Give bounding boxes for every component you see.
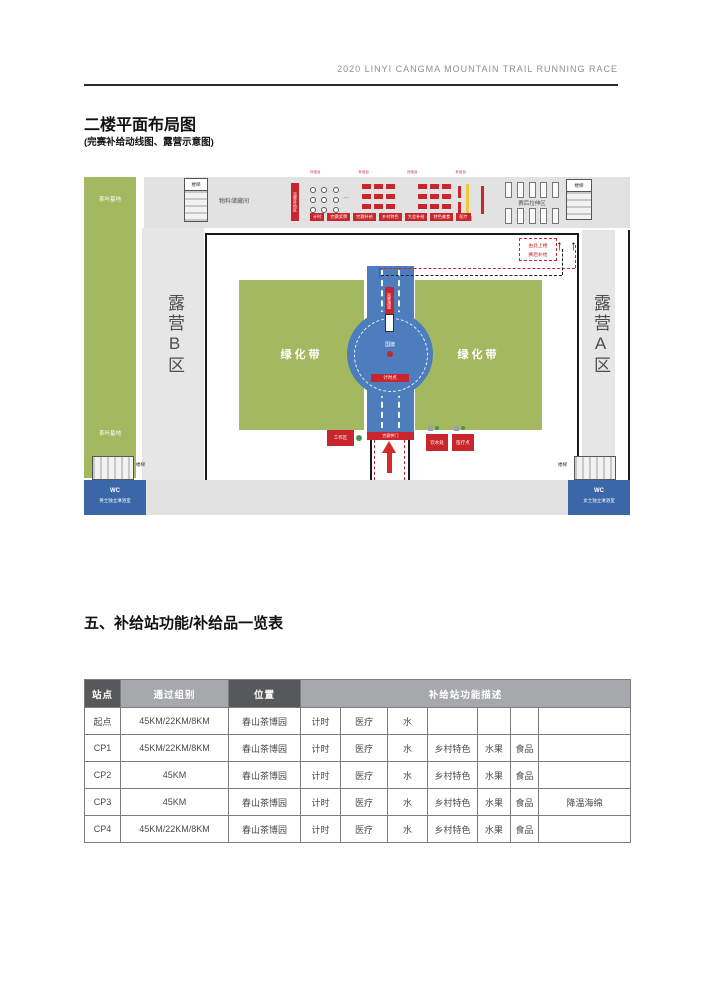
cell-groups: 45KM/22KM/8KM bbox=[121, 735, 229, 762]
flag-label: 国旗 bbox=[370, 341, 410, 348]
chair-icon bbox=[333, 187, 339, 193]
stretch-mat-row bbox=[505, 208, 559, 224]
supply-chip: 大会补给 bbox=[405, 213, 428, 221]
cell-function: 医疗 bbox=[341, 762, 388, 789]
supply-table-icon bbox=[430, 184, 439, 189]
stairs-icon bbox=[574, 456, 616, 480]
plan-subtitle: (完赛补给动线图、露营示意图) bbox=[84, 134, 214, 148]
supply-table: 站点 通过组别 位置 补给站功能描述 起点 45KM/22KM/8KM 春山茶博… bbox=[84, 679, 631, 843]
chair-icon bbox=[310, 197, 316, 203]
cell-station: CP2 bbox=[85, 762, 121, 789]
bottom-corridor bbox=[84, 480, 630, 515]
col-groups: 通过组别 bbox=[121, 680, 229, 708]
supply-chip: 医疗 bbox=[456, 213, 470, 221]
header-divider bbox=[84, 84, 618, 86]
medical-station-box: 医疗点 bbox=[452, 434, 474, 451]
chairs-cluster bbox=[310, 187, 340, 213]
mat-icon bbox=[517, 208, 524, 224]
table-row: CP2 45KM 春山茶博园 计时 医疗 水 乡村特色 水果 食品 bbox=[85, 762, 631, 789]
supply-table-icon bbox=[386, 204, 395, 209]
supply-table-icon bbox=[362, 204, 371, 209]
lane-dash-red bbox=[404, 440, 405, 480]
cell-groups: 45KM/22KM/8KM bbox=[121, 708, 229, 735]
dispenser-icon bbox=[428, 426, 433, 431]
col-station: 站点 bbox=[85, 680, 121, 708]
cell-groups: 45KM bbox=[121, 762, 229, 789]
dispenser-icon bbox=[435, 426, 439, 430]
stairs-label: 楼梯 bbox=[558, 462, 567, 468]
cell-function: 水果 bbox=[478, 735, 511, 762]
right-wall bbox=[628, 230, 631, 480]
tea-base-label: 茶叶基地 bbox=[84, 195, 136, 203]
supply-table-icon bbox=[362, 184, 371, 189]
chair-icon bbox=[321, 187, 327, 193]
cell-function: 水 bbox=[388, 735, 428, 762]
supply-table-icon bbox=[386, 184, 395, 189]
camp-zone-b: 露营B区 bbox=[142, 228, 204, 480]
cell-function: 计时 bbox=[301, 816, 341, 843]
wc-label: WC bbox=[568, 488, 630, 494]
supply-table-icon bbox=[374, 184, 383, 189]
cell-groups: 45KM bbox=[121, 789, 229, 816]
table-row: CP3 45KM 春山茶博园 计时 医疗 水 乡村特色 水果 食品 降温海绵 bbox=[85, 789, 631, 816]
cell-function: 水 bbox=[388, 708, 428, 735]
supply-chip: 特色美食 bbox=[430, 213, 453, 221]
wc-women: WC 女士独立淋浴室 bbox=[568, 480, 630, 515]
camp-a-label: 露营A区 bbox=[588, 294, 613, 376]
cell-station: CP4 bbox=[85, 816, 121, 843]
page: 2020 LINYI CANGMA MOUNTAIN TRAIL RUNNING… bbox=[0, 0, 702, 993]
courtyard: 绿化带 绿化带 国旗 计时点 完赛通道 由此上楼 赛后补给 bbox=[205, 233, 579, 482]
fixture-red-bar bbox=[481, 186, 484, 214]
mat-icon bbox=[540, 208, 547, 224]
upstairs-note-line1: 由此上楼 bbox=[520, 242, 556, 249]
timing-point-chip: 计时点 bbox=[371, 374, 409, 382]
supply-table-icon bbox=[374, 194, 383, 199]
cell-function: 乡村特色 bbox=[428, 762, 478, 789]
lane-dash-red bbox=[374, 440, 375, 480]
supply-table-icon bbox=[418, 204, 427, 209]
supply-table-icon bbox=[418, 194, 427, 199]
cell-station: CP1 bbox=[85, 735, 121, 762]
supply-chip: 完赛补给 bbox=[353, 213, 376, 221]
cell-function bbox=[428, 708, 478, 735]
cell-location: 春山茶博园 bbox=[229, 735, 301, 762]
cell-function: 计时 bbox=[301, 762, 341, 789]
mat-icon bbox=[505, 208, 512, 224]
cell-function bbox=[539, 735, 631, 762]
tea-base-label: 茶叶基地 bbox=[84, 429, 136, 437]
cell-location: 春山茶博园 bbox=[229, 762, 301, 789]
supply-chip: 乡村特色 bbox=[379, 213, 402, 221]
storage-room-label: 物料储藏间 bbox=[208, 196, 260, 205]
stairs-icon bbox=[184, 190, 208, 222]
finish-direction-arrow-stem bbox=[387, 453, 392, 473]
mat-icon bbox=[529, 182, 536, 198]
cell-station: CP3 bbox=[85, 789, 121, 816]
green-belt-label: 绿化带 bbox=[415, 346, 542, 362]
chair-icon bbox=[321, 197, 327, 203]
supply-top-marks: 补给台 补给台 补给台 补给台 bbox=[310, 170, 500, 175]
cell-function: 水果 bbox=[478, 762, 511, 789]
cell-groups: 45KM/22KM/8KM bbox=[121, 816, 229, 843]
wc-women-label: 女士独立淋浴室 bbox=[568, 498, 630, 504]
stairs-label: 楼梯 bbox=[136, 462, 145, 468]
cell-function: 乡村特色 bbox=[428, 735, 478, 762]
route-dash-red bbox=[379, 268, 380, 278]
finish-arch: 完赛拱门 bbox=[367, 432, 414, 440]
work-area-box: 工作区 bbox=[327, 430, 354, 446]
camp-zone-a: 露营A区 bbox=[582, 230, 615, 480]
flag-icon bbox=[387, 351, 393, 357]
table-row: CP4 45KM/22KM/8KM 春山茶博园 计时 医疗 水 乡村特色 水果 … bbox=[85, 816, 631, 843]
wc-men: WC 男士独立淋浴室 bbox=[84, 480, 146, 515]
floor-plan: 茶叶基地 茶叶基地 补给台 补给台 补给台 补给台 楼梯 物料储藏间 完赛补给区… bbox=[84, 170, 630, 515]
supply-chip: 完赛奖牌 bbox=[327, 213, 350, 221]
cell-function: 计时 bbox=[301, 735, 341, 762]
plan-title: 二楼平面布局图 bbox=[84, 111, 196, 135]
dispenser-icon bbox=[454, 426, 459, 431]
stairs-icon bbox=[92, 456, 134, 480]
cell-function bbox=[478, 708, 511, 735]
mat-icon bbox=[552, 208, 559, 224]
cell-function: 食品 bbox=[511, 789, 539, 816]
upstairs-note-line2: 赛后补给 bbox=[520, 251, 556, 258]
finish-supply-banner: 完赛补给区 bbox=[291, 183, 299, 221]
cell-function: 水果 bbox=[478, 816, 511, 843]
cell-function: 食品 bbox=[511, 816, 539, 843]
finish-direction-arrow-head bbox=[382, 441, 396, 453]
cell-function: 乡村特色 bbox=[428, 816, 478, 843]
cell-function: 食品 bbox=[511, 762, 539, 789]
stretch-mat-row bbox=[505, 182, 559, 198]
cell-function bbox=[511, 708, 539, 735]
supply-tables-grid bbox=[362, 184, 395, 209]
cell-location: 春山茶博园 bbox=[229, 789, 301, 816]
supply-top-mark: 补给台 bbox=[359, 170, 370, 175]
water-station-box: 饮水处 bbox=[426, 434, 448, 451]
green-belt-left: 绿化带 bbox=[239, 280, 364, 430]
chair-icon bbox=[310, 187, 316, 193]
supply-table-icon bbox=[374, 204, 383, 209]
route-dash-black bbox=[381, 275, 562, 276]
cell-function: 乡村特色 bbox=[428, 789, 478, 816]
mat-icon bbox=[517, 182, 524, 198]
cell-function: 医疗 bbox=[341, 735, 388, 762]
table-row: CP1 45KM/22KM/8KM 春山茶博园 计时 医疗 水 乡村特色 水果 … bbox=[85, 735, 631, 762]
cell-function: 降温海绵 bbox=[539, 789, 631, 816]
camp-b-label: 露营B区 bbox=[162, 294, 187, 376]
lane-wall bbox=[408, 440, 410, 480]
supply-station-table: 站点 通过组别 位置 补给站功能描述 起点 45KM/22KM/8KM 春山茶博… bbox=[84, 679, 631, 843]
supply-table-icon bbox=[418, 184, 427, 189]
mat-icon bbox=[540, 182, 547, 198]
cell-function bbox=[539, 816, 631, 843]
cell-function: 水 bbox=[388, 789, 428, 816]
green-belt-right: 绿化带 bbox=[415, 280, 542, 430]
supply-table-icon bbox=[442, 194, 451, 199]
road-banner-post bbox=[385, 314, 394, 332]
cell-function: 计时 bbox=[301, 789, 341, 816]
up-arrow-icon: ↑ bbox=[570, 237, 577, 253]
col-functions: 补给站功能描述 bbox=[301, 680, 631, 708]
supply-table-icon bbox=[362, 194, 371, 199]
cell-function: 医疗 bbox=[341, 816, 388, 843]
stairs-icon bbox=[566, 191, 592, 220]
supply-top-mark: 补给台 bbox=[456, 170, 467, 175]
cell-location: 春山茶博园 bbox=[229, 816, 301, 843]
lane-wall bbox=[370, 440, 372, 480]
supply-table-icon bbox=[430, 204, 439, 209]
supply-top-mark: 补给台 bbox=[310, 170, 321, 175]
wc-men-label: 男士独立淋浴室 bbox=[84, 498, 146, 504]
supply-table-icon bbox=[386, 194, 395, 199]
cell-function: 医疗 bbox=[341, 789, 388, 816]
mat-icon bbox=[505, 182, 512, 198]
col-location: 位置 bbox=[229, 680, 301, 708]
up-arrow-icon: ↑ bbox=[556, 237, 563, 253]
upstairs-note: 由此上楼 赛后补给 bbox=[519, 238, 557, 261]
supply-section-title: 五、补给站功能/补给品一览表 bbox=[84, 612, 283, 633]
chair-icon bbox=[333, 197, 339, 203]
cell-function: 水 bbox=[388, 762, 428, 789]
race-title: 2020 LINYI CANGMA MOUNTAIN TRAIL RUNNING… bbox=[337, 64, 618, 74]
cell-location: 春山茶博园 bbox=[229, 708, 301, 735]
supply-tables-grid bbox=[418, 184, 451, 209]
cell-function: 水果 bbox=[478, 789, 511, 816]
dispenser-icon bbox=[461, 426, 465, 430]
road-banner: 完赛通道 bbox=[385, 287, 394, 314]
supply-chip: 计时 bbox=[310, 213, 324, 221]
cell-function: 水 bbox=[388, 816, 428, 843]
supply-label-row: 计时 完赛奖牌 完赛补给 乡村特色 大会补给 特色美食 医疗 bbox=[310, 213, 471, 221]
fixture-red-bar bbox=[458, 186, 461, 198]
green-belt-label: 绿化带 bbox=[239, 346, 364, 362]
recycle-icon bbox=[356, 435, 362, 441]
cell-station: 起点 bbox=[85, 708, 121, 735]
mat-icon bbox=[529, 208, 536, 224]
route-dash-red bbox=[379, 268, 575, 269]
cell-function: 食品 bbox=[511, 735, 539, 762]
supply-top-mark: 补给台 bbox=[407, 170, 418, 175]
supply-table-icon bbox=[442, 204, 451, 209]
cell-function bbox=[539, 762, 631, 789]
cell-function: 计时 bbox=[301, 708, 341, 735]
mat-icon bbox=[552, 182, 559, 198]
ellipsis: … bbox=[343, 194, 349, 200]
supply-table-icon bbox=[430, 194, 439, 199]
cell-function bbox=[539, 708, 631, 735]
table-row: 起点 45KM/22KM/8KM 春山茶博园 计时 医疗 水 bbox=[85, 708, 631, 735]
tea-base-strip: 茶叶基地 茶叶基地 bbox=[84, 177, 136, 478]
cell-function: 医疗 bbox=[341, 708, 388, 735]
table-header-row: 站点 通过组别 位置 补给站功能描述 bbox=[85, 680, 631, 708]
supply-table-icon bbox=[442, 184, 451, 189]
wc-label: WC bbox=[84, 488, 146, 494]
stretch-area-label: 赛后拉伸区 bbox=[502, 199, 562, 207]
